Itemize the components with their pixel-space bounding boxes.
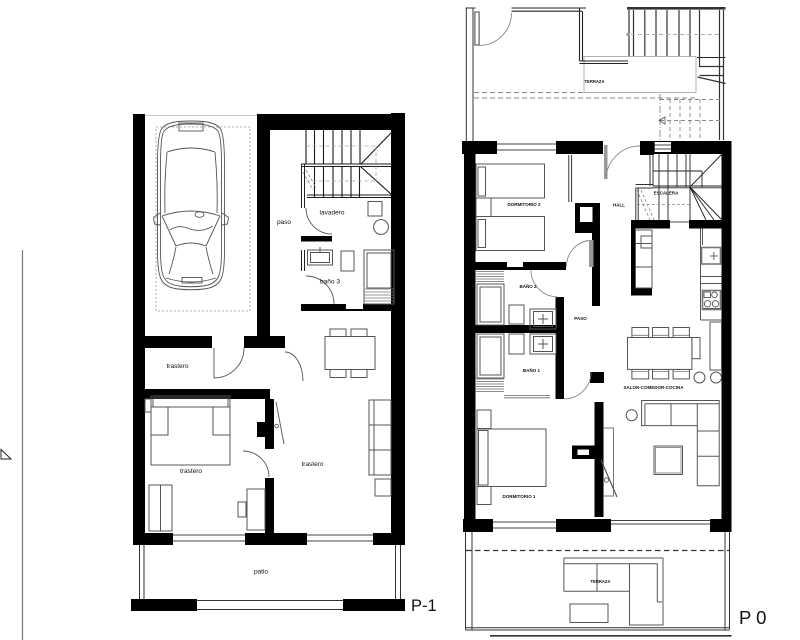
svg-text:P-1: P-1 bbox=[411, 597, 437, 615]
svg-text:trastero: trastero bbox=[166, 363, 188, 370]
svg-text:SALON-COMEDOR-COCINA: SALON-COMEDOR-COCINA bbox=[624, 385, 685, 390]
svg-text:HALL: HALL bbox=[613, 203, 625, 208]
svg-text:TERRAZA: TERRAZA bbox=[584, 79, 604, 84]
svg-text:baño 3: baño 3 bbox=[320, 279, 340, 286]
svg-text:trastero: trastero bbox=[180, 468, 202, 475]
svg-text:ESCALERA: ESCALERA bbox=[654, 191, 680, 196]
svg-text:paso: paso bbox=[277, 219, 291, 226]
svg-text:TERRAZA: TERRAZA bbox=[590, 579, 610, 584]
svg-text:DORMITORIO 2: DORMITORIO 2 bbox=[508, 202, 541, 207]
svg-text:DORMITORIO 1: DORMITORIO 1 bbox=[503, 494, 536, 499]
svg-text:patio: patio bbox=[254, 569, 268, 576]
svg-text:P 0: P 0 bbox=[739, 607, 766, 628]
svg-text:lavadero: lavadero bbox=[320, 210, 345, 217]
svg-text:trastero: trastero bbox=[301, 461, 323, 468]
svg-text:BAÑO 2: BAÑO 2 bbox=[519, 283, 536, 289]
svg-text:PASO: PASO bbox=[574, 316, 587, 321]
svg-text:BAÑO 1: BAÑO 1 bbox=[523, 367, 540, 373]
